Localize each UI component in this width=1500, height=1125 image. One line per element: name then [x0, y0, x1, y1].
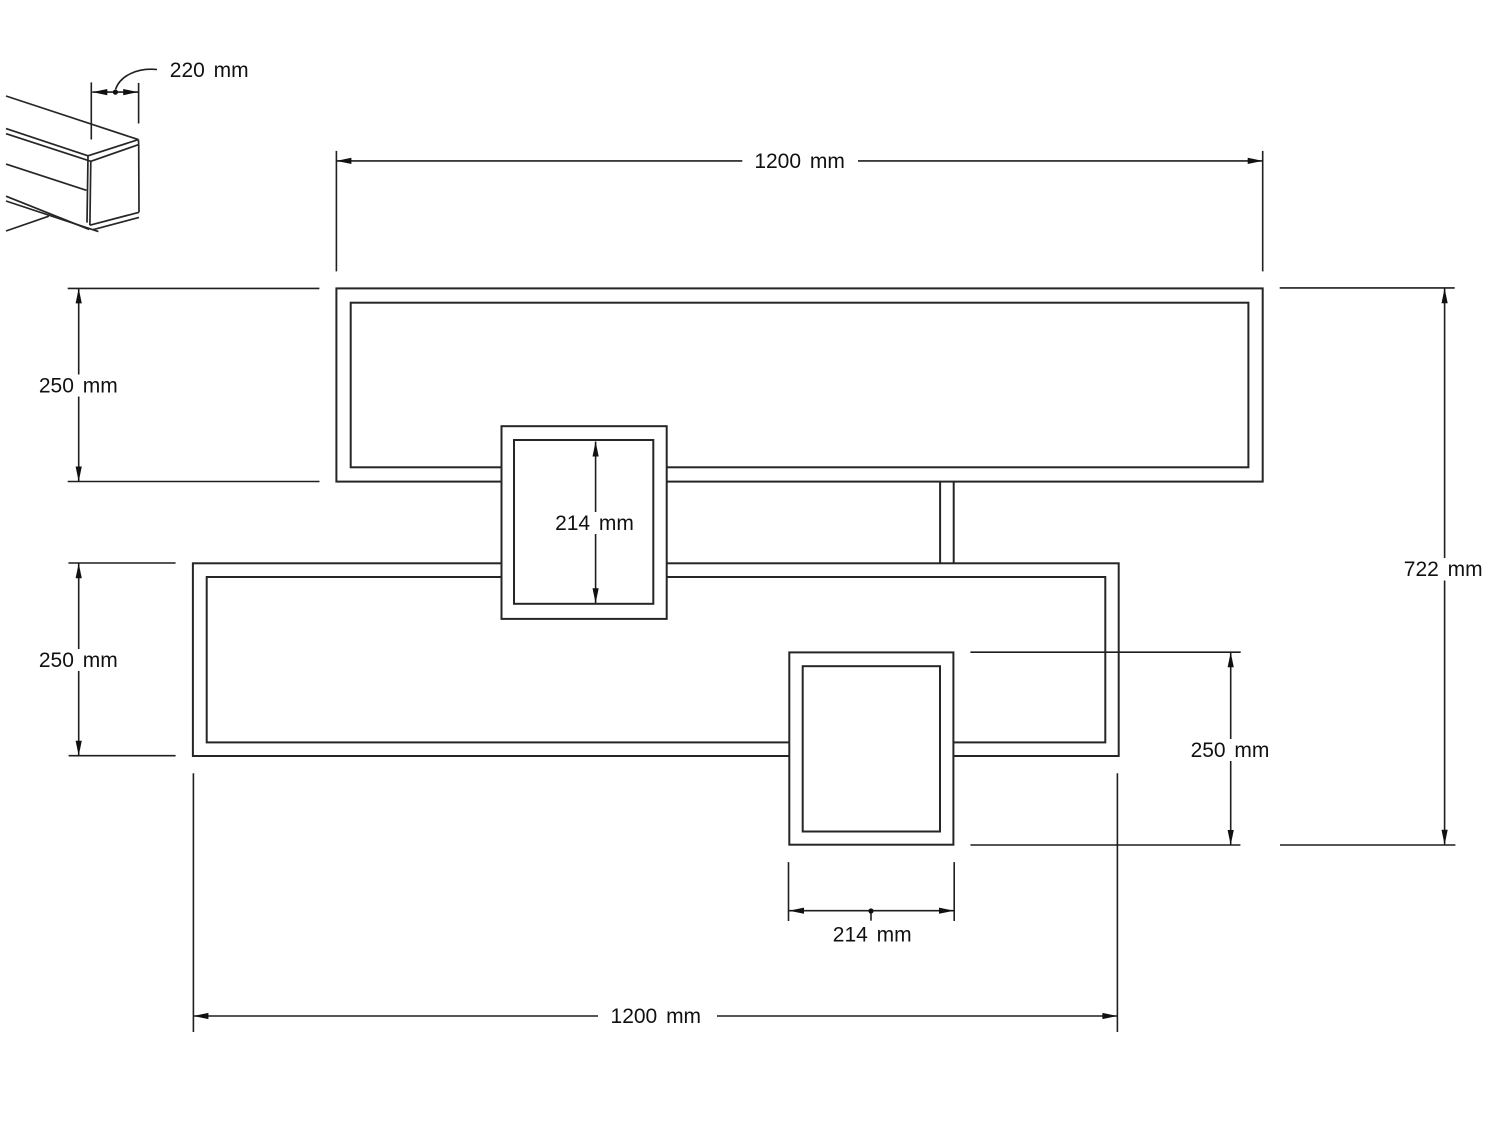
svg-text:214 mm: 214 mm — [833, 923, 912, 946]
svg-text:214 mm: 214 mm — [555, 512, 634, 535]
svg-text:1200 mm: 1200 mm — [754, 150, 845, 173]
svg-text:722 mm: 722 mm — [1404, 558, 1483, 581]
svg-text:250 mm: 250 mm — [39, 649, 118, 672]
svg-text:250 mm: 250 mm — [39, 374, 118, 397]
svg-text:250 mm: 250 mm — [1191, 739, 1270, 762]
svg-text:220 mm: 220 mm — [170, 59, 249, 82]
svg-text:1200 mm: 1200 mm — [611, 1005, 702, 1028]
